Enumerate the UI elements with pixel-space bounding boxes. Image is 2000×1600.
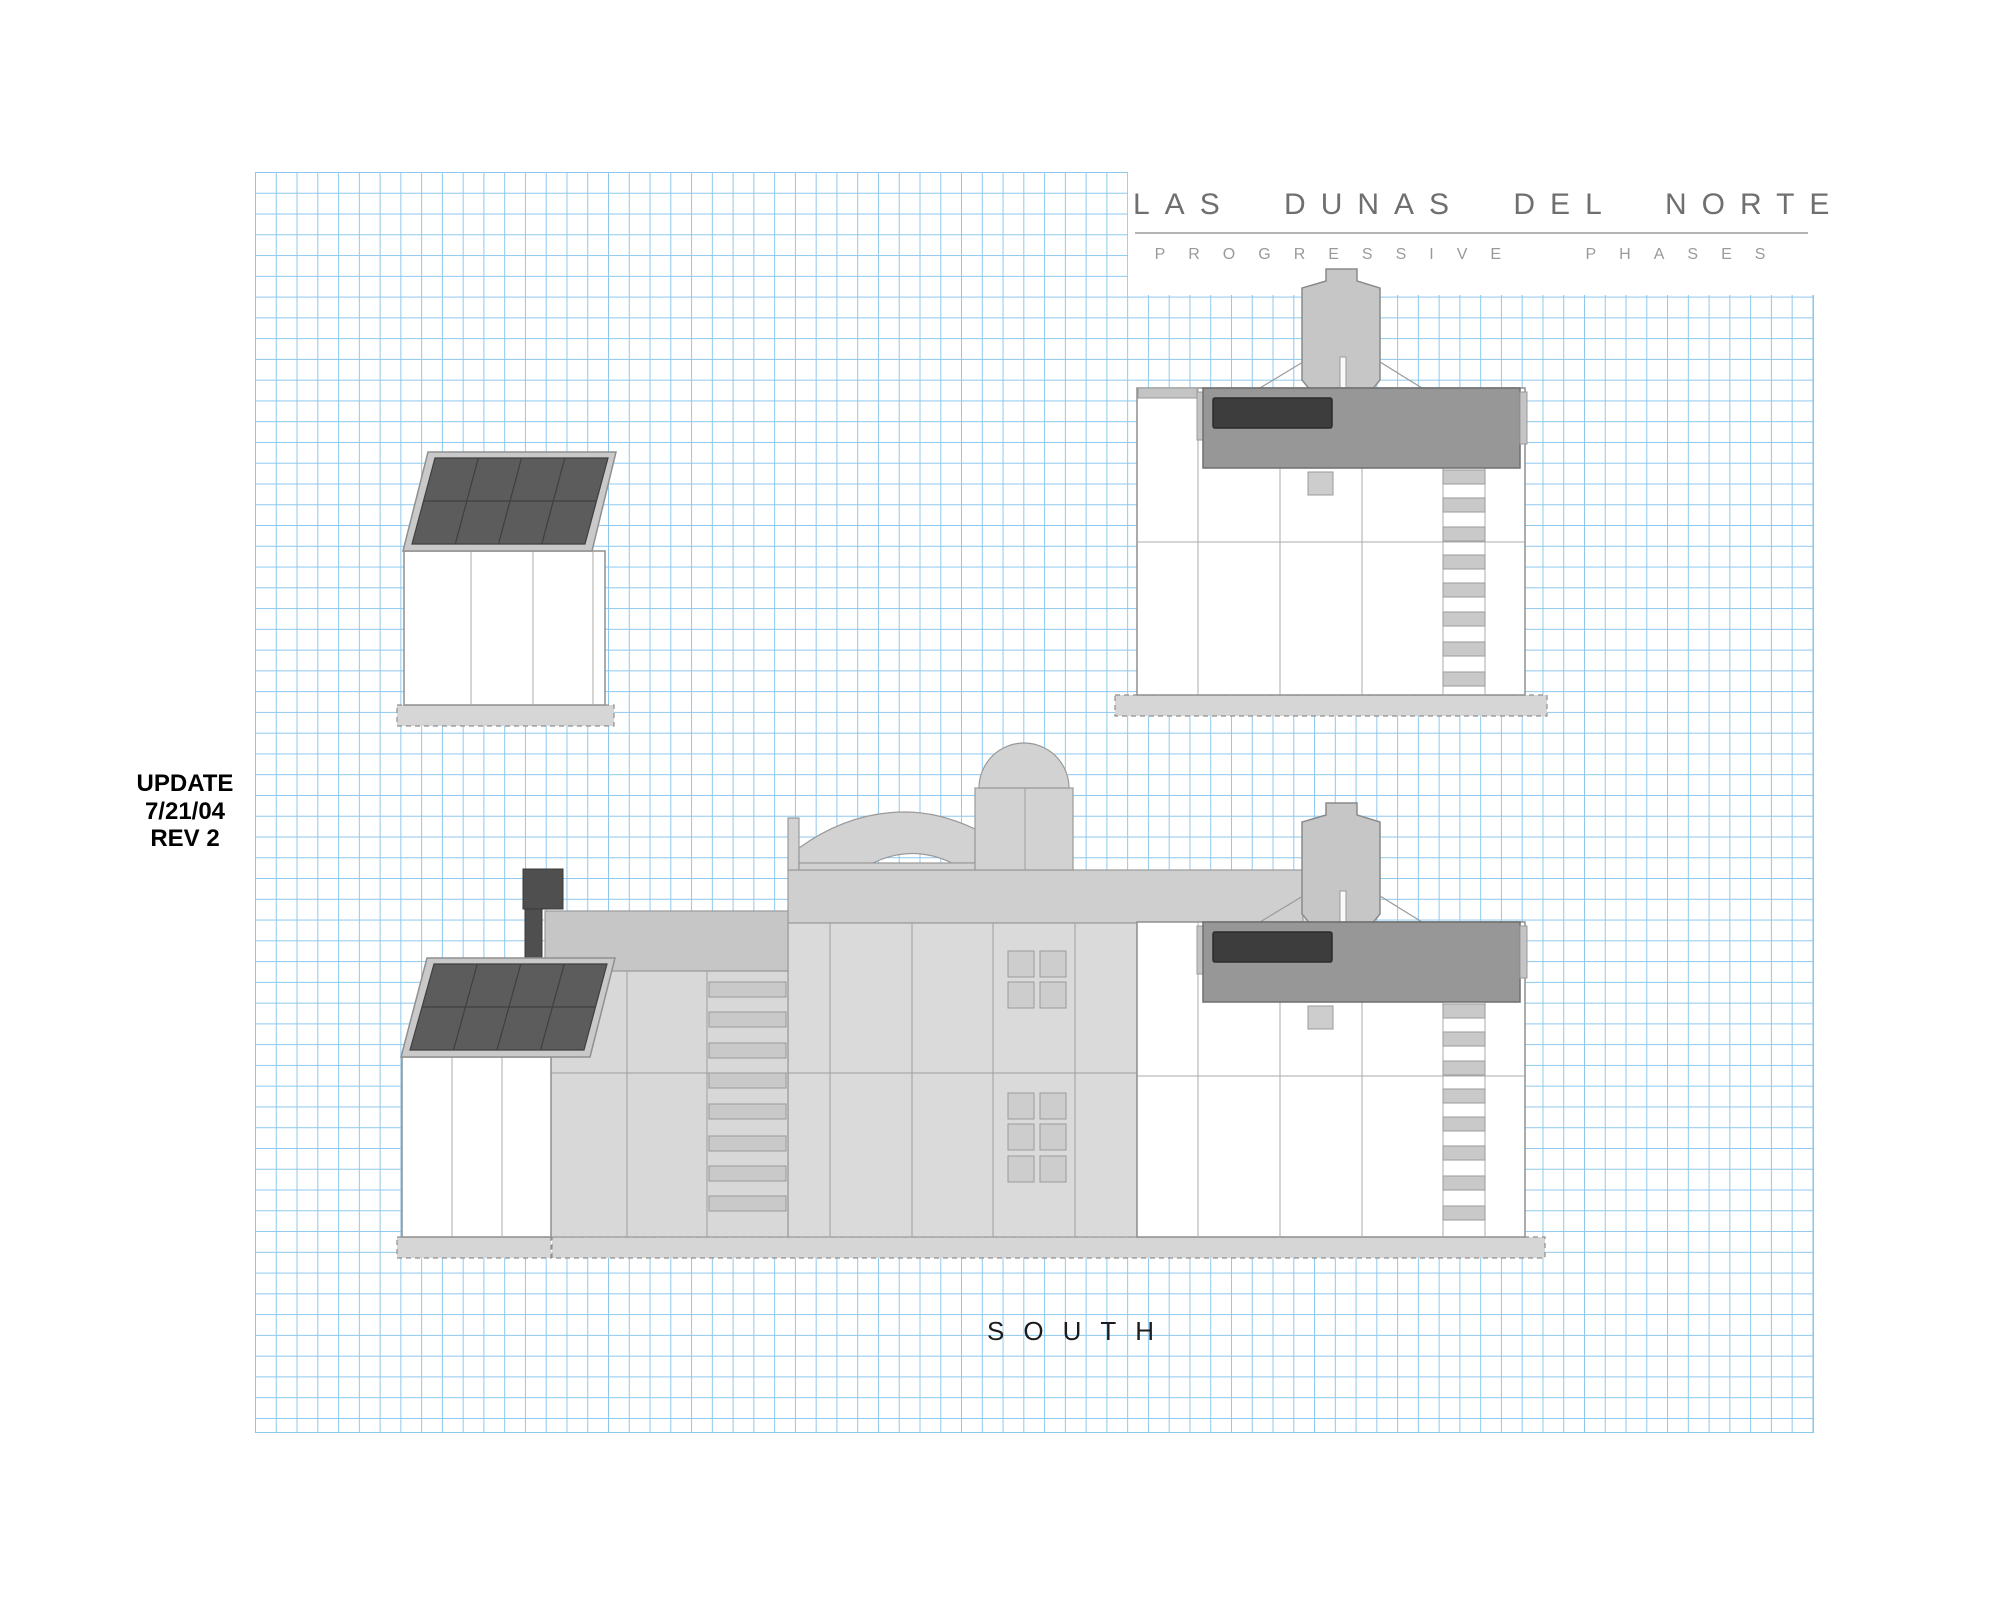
title-block-background xyxy=(1128,150,1820,295)
revision-note: UPDATE 7/21/04 REV 2 xyxy=(100,770,270,853)
drawing-sheet: LAS DUNAS DEL NORTE PROGRESSIVE PHASES U… xyxy=(0,0,2000,1600)
revision-note-line2: 7/21/04 xyxy=(100,798,270,826)
project-title: LAS DUNAS DEL NORTE xyxy=(1133,188,1823,222)
elevation-label: SOUTH xyxy=(930,1316,1230,1347)
revision-note-line3: REV 2 xyxy=(100,825,270,853)
project-subtitle: PROGRESSIVE PHASES xyxy=(1135,246,1808,264)
revision-note-line1: UPDATE xyxy=(100,770,270,798)
graph-paper-grid xyxy=(255,172,1814,1433)
title-divider-line xyxy=(1135,232,1808,234)
